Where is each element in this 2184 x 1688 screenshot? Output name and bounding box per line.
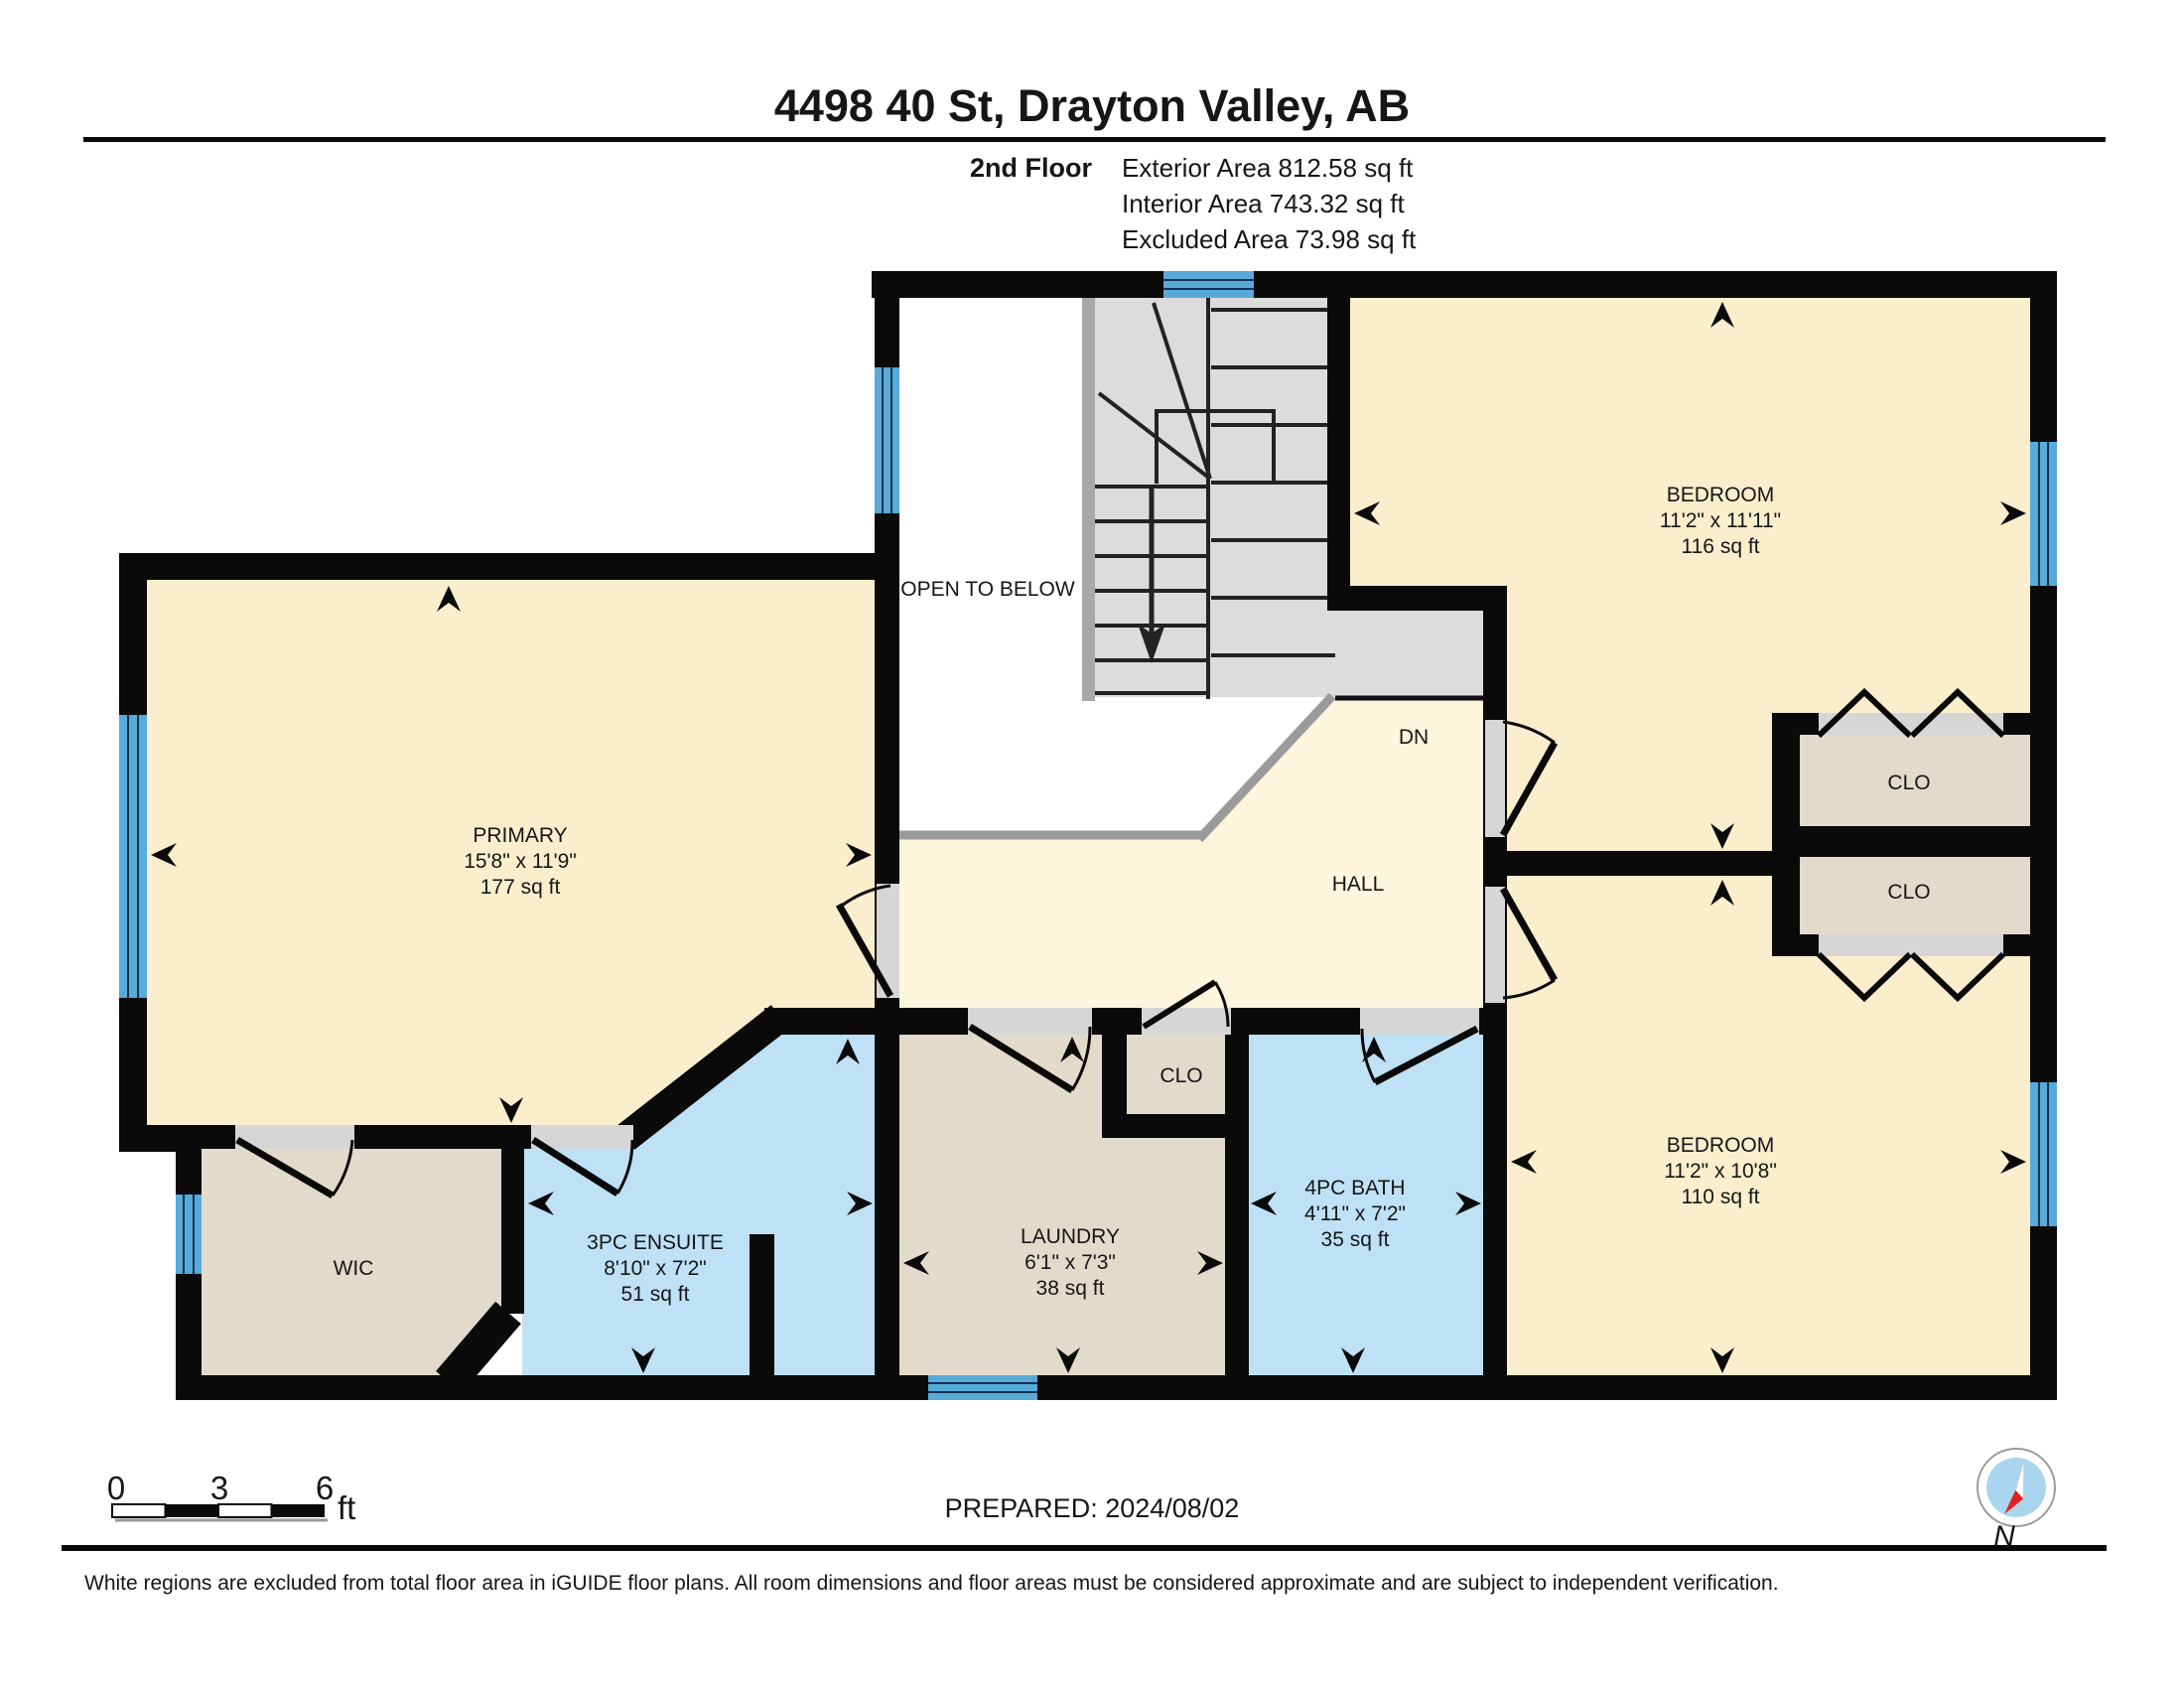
bedroom-bottom-dims: 11'2" x 10'8" — [1664, 1160, 1777, 1183]
wall-ensuite-top — [764, 1008, 899, 1035]
wall-ensuite-stub — [750, 1234, 774, 1375]
ensuite-dims: 8'10" x 7'2" — [604, 1257, 707, 1280]
opening-bifold-top — [1819, 713, 2003, 735]
scale-bar: 0 3 6 ft — [107, 1470, 356, 1526]
floor-label: 2nd Floor — [970, 153, 1092, 183]
opening-bedroom-top — [1485, 720, 1505, 837]
footer: 0 3 6 ft PREPARED: 2024/08/02 N White re… — [62, 1449, 2107, 1595]
header-divider — [83, 137, 2106, 142]
wall-wic-right — [501, 1125, 524, 1314]
opening-laundry — [968, 1008, 1092, 1035]
disclaimer-text: White regions are excluded from total fl… — [84, 1572, 1779, 1595]
bedroom-top-dims: 11'2" x 11'11" — [1660, 509, 1781, 532]
bedroom-top-name: BEDROOM — [1667, 484, 1775, 506]
excluded-area: Excluded Area 73.98 sq ft — [1122, 224, 1417, 254]
ensuite-name: 3PC ENSUITE — [587, 1231, 724, 1254]
open-to-below-area — [899, 298, 1082, 839]
wall-stairs-right — [1327, 271, 1350, 611]
window-bedroom-bottom-right — [2030, 1082, 2057, 1226]
bath-dims: 4'11" x 7'2" — [1304, 1202, 1406, 1225]
exterior-area: Exterior Area 812.58 sq ft — [1122, 153, 1414, 183]
bedroom-top-area: 116 sq ft — [1682, 535, 1760, 558]
laundry-name: LAUNDRY — [1021, 1225, 1120, 1248]
primary-area: 177 sq ft — [480, 876, 561, 899]
wall-right — [2030, 271, 2057, 1400]
floorplan-canvas: 4498 40 St, Drayton Valley, AB 2nd Floor… — [0, 0, 2184, 1688]
interior-area: Interior Area 743.32 sq ft — [1122, 189, 1406, 218]
wic-label: WIC — [334, 1257, 374, 1280]
primary-name: PRIMARY — [473, 824, 567, 847]
opening-bath — [1360, 1008, 1479, 1035]
bedroom-bottom-name: BEDROOM — [1667, 1134, 1775, 1157]
footer-divider — [62, 1545, 2107, 1551]
header: 4498 40 St, Drayton Valley, AB 2nd Floor… — [83, 80, 2106, 254]
window-openbelow-left — [875, 367, 899, 513]
bedroom-bottom-area: 110 sq ft — [1682, 1186, 1760, 1208]
wall-closets-mid — [1772, 826, 2030, 857]
scale-tick-3: 3 — [210, 1470, 228, 1506]
window-wic-left — [176, 1195, 202, 1274]
stair-flights — [1082, 296, 1350, 701]
page-title: 4498 40 St, Drayton Valley, AB — [774, 80, 1410, 131]
compass: N — [1978, 1449, 2055, 1553]
laundry-dims: 6'1" x 7'3" — [1024, 1251, 1116, 1274]
wall-landing-top — [1327, 586, 1507, 611]
laundry-area: 38 sq ft — [1036, 1277, 1105, 1300]
window-laundry-bottom — [928, 1375, 1037, 1400]
scale-tick-6: 6 — [316, 1470, 334, 1506]
scale-tick-0: 0 — [107, 1470, 125, 1506]
primary-dims: 15'8" x 11'9" — [464, 850, 577, 873]
closet-hall-label: CLO — [1160, 1064, 1202, 1087]
scale-unit: ft — [338, 1489, 355, 1526]
wall-wic-left — [176, 1152, 202, 1400]
window-stairs-top — [1163, 271, 1254, 298]
bath-name: 4PC BATH — [1304, 1177, 1405, 1199]
stair-railing-strip — [1082, 296, 1095, 701]
wall-primary-top — [119, 553, 899, 580]
opening-bedroom-bottom — [1485, 887, 1505, 1003]
hall-label: HALL — [1332, 873, 1385, 896]
opening-bifold-bottom — [1819, 934, 2003, 956]
prepared-date: PREPARED: 2024/08/02 — [945, 1493, 1240, 1523]
wall-top — [872, 271, 2057, 298]
bath-area: 35 sq ft — [1321, 1228, 1390, 1251]
dn-label: DN — [1399, 726, 1429, 749]
wall-bedrooms-mid — [1483, 851, 1800, 876]
closet-bottom-label: CLO — [1887, 881, 1930, 904]
wall-bath-left — [1225, 1008, 1249, 1375]
closet-top-label: CLO — [1887, 772, 1930, 794]
window-bedroom-top-right — [2030, 442, 2057, 586]
open-to-below-label: OPEN TO BELOW — [900, 578, 1075, 601]
window-primary-left — [119, 715, 147, 998]
ensuite-area: 51 sq ft — [621, 1283, 690, 1306]
